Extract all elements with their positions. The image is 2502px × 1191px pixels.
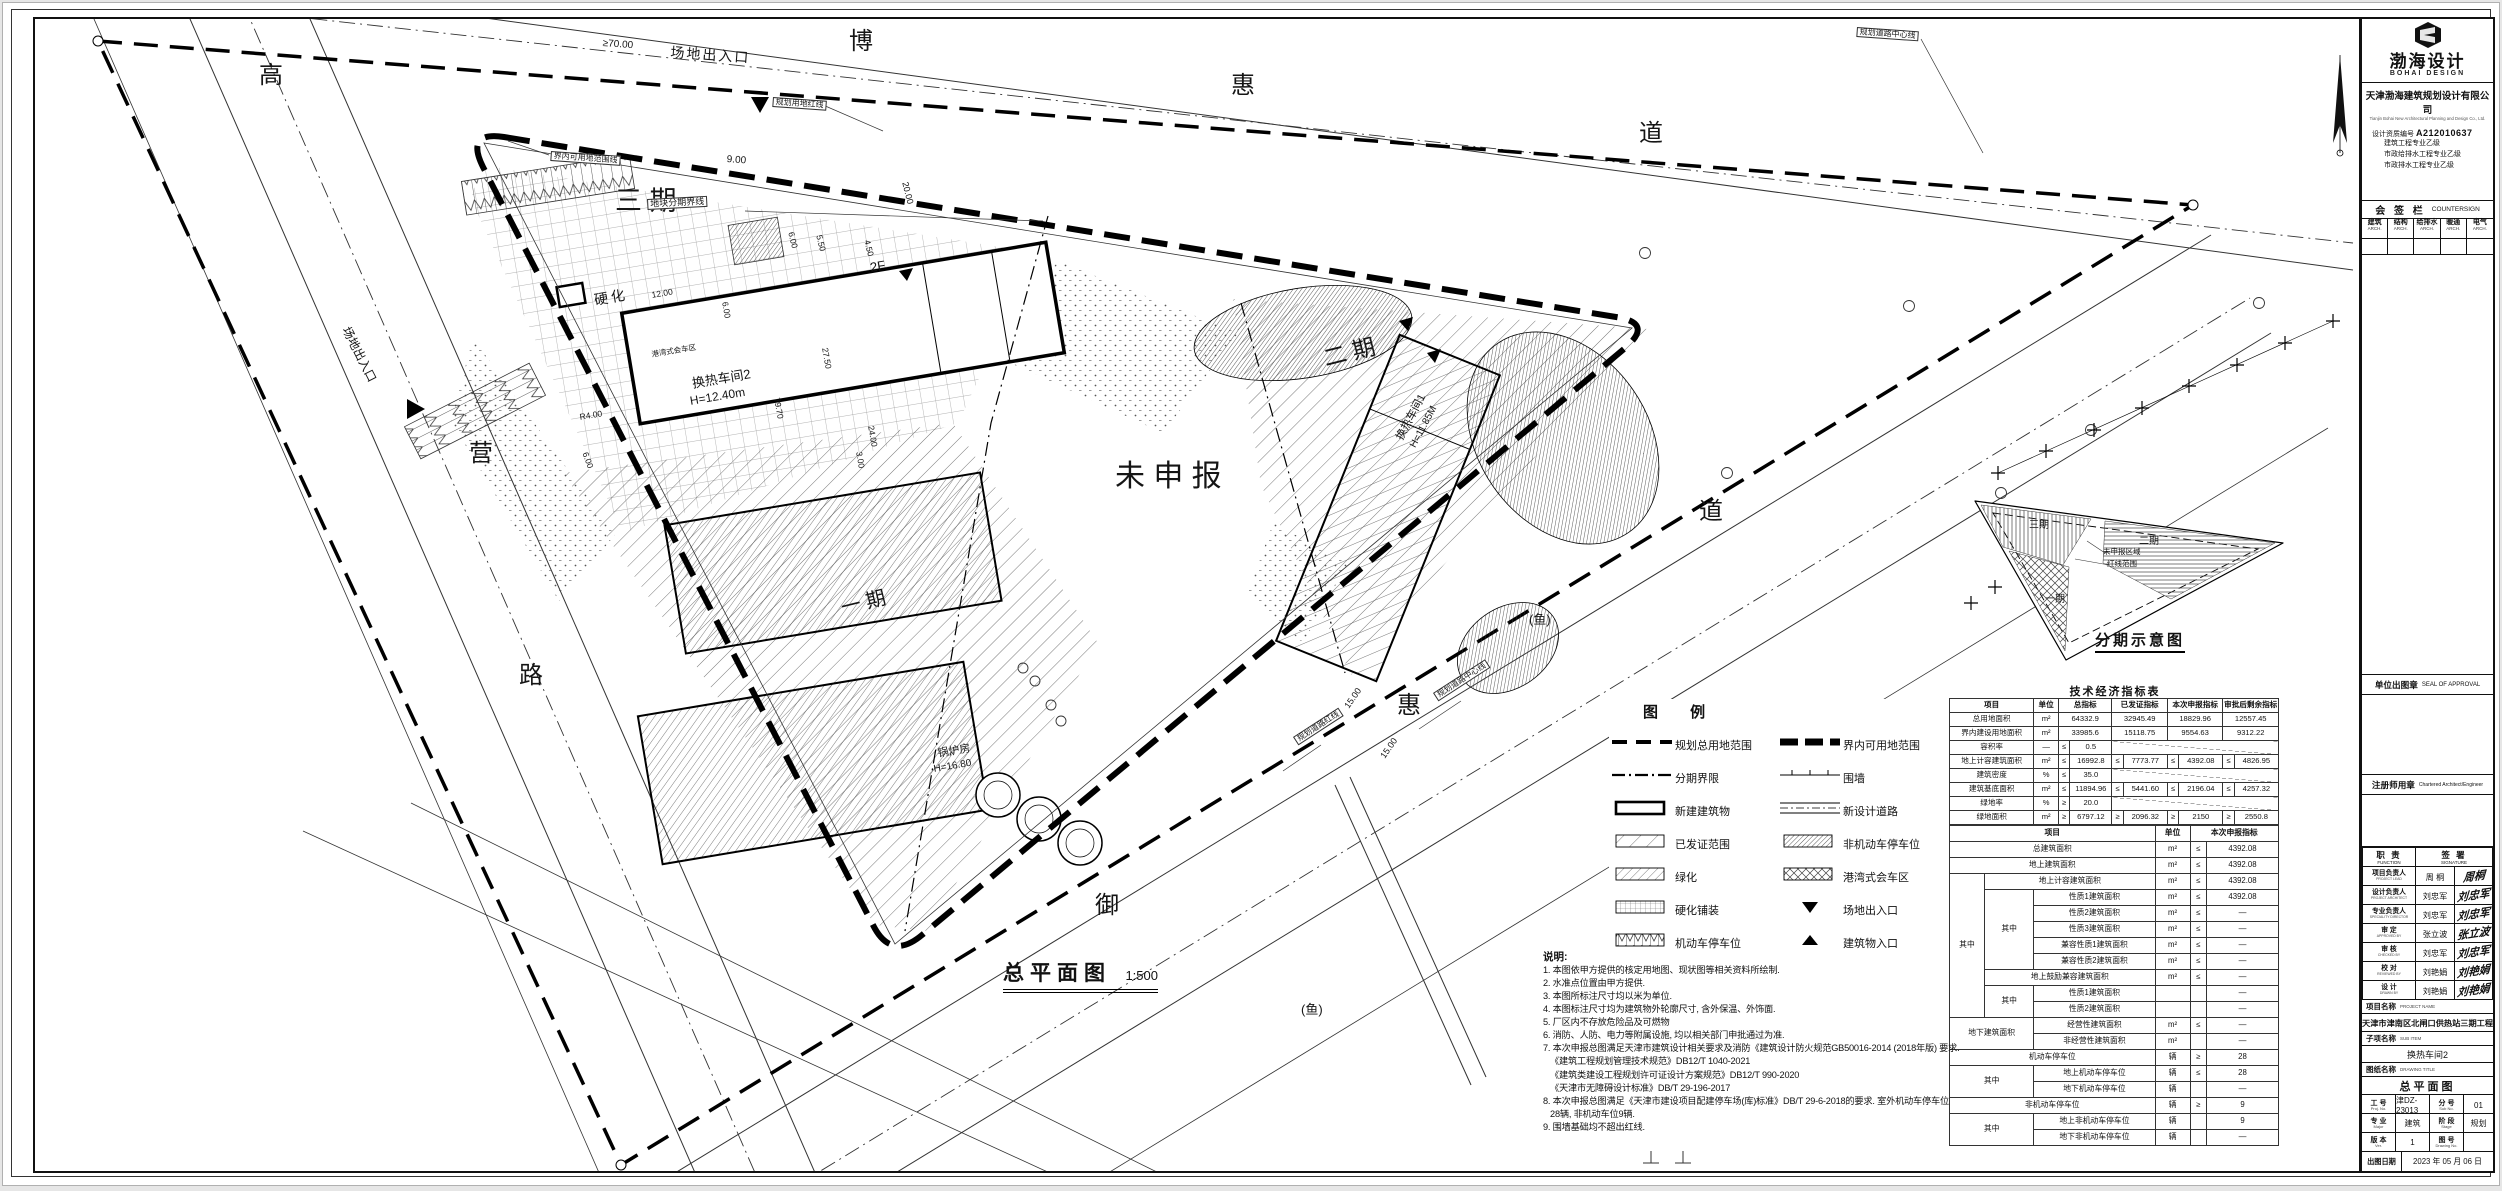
tech-cell: 性质2建筑面积 xyxy=(2034,1002,2155,1018)
tech-row: 地上鼓励兼容建筑面积m²≤— xyxy=(1950,970,2279,986)
tech-row: 其中性质1建筑面积— xyxy=(1950,986,2279,1002)
countersign-col-header: 结构ARCH. xyxy=(2388,219,2414,239)
tech-cell: 28 xyxy=(2207,1066,2279,1082)
personnel-signature: 刘忠军 xyxy=(2455,943,2493,962)
tech-cell: 0.5 xyxy=(2070,741,2112,755)
tech-cell: % xyxy=(2034,797,2059,811)
tech-cell xyxy=(2190,986,2206,1002)
tech-cell: — xyxy=(2207,1034,2279,1050)
personnel-role: 审 定APPROVED BY xyxy=(2363,924,2416,943)
function-header-cn: 职 责 xyxy=(2363,849,2415,861)
tech-cell: m² xyxy=(2034,811,2059,825)
personnel-name-text: 刘忠军 xyxy=(2423,911,2448,920)
countersign-empty-cell xyxy=(2362,239,2388,254)
zone-fills xyxy=(451,165,1699,931)
legend-item-label: 规划总用地范围 xyxy=(1675,737,1752,753)
countersign-empty-cell xyxy=(2441,239,2467,254)
signature-scrawl: 周桐 xyxy=(2462,866,2485,885)
tech-cell: m² xyxy=(2034,727,2059,741)
tech-cell: 辆 xyxy=(2155,1130,2190,1146)
issue-date-label: 出图日期 xyxy=(2362,1152,2402,1171)
notes-line: 2. 水准点位置由甲方提供. xyxy=(1543,977,1945,990)
legend-item: 界内可用地范围 xyxy=(1777,728,1945,761)
tech-header-cell: 总指标 xyxy=(2058,699,2111,713)
meta-label-en: Sub No. xyxy=(2439,1107,2453,1111)
tech-cell: 非机动车停车位 xyxy=(1950,1098,2156,1114)
personnel-signature: 刘忠军 xyxy=(2455,886,2493,905)
personnel-role-en: PROJECT ARCHITECT xyxy=(2366,897,2413,900)
notes-line: 《天津市无障碍设计标准》DB/T 29-196-2017 xyxy=(1543,1082,1945,1095)
meta-row: 工 号Proj. No.津DZ-23013分 号Sub No.01 xyxy=(2362,1095,2493,1114)
tech-cell: — xyxy=(2207,954,2279,970)
meta-label: 版 本Ver. xyxy=(2362,1133,2396,1151)
tech-cell: — xyxy=(2207,1002,2279,1018)
meta-value-text: 规划 xyxy=(2471,1118,2487,1129)
personnel-role-en: APPROVED BY xyxy=(2366,935,2413,938)
tech-cell: 容积率 xyxy=(1950,741,2034,755)
signature-header-cn: 签 署 xyxy=(2416,849,2492,861)
issue-date-value: 2023 年 05 月 06 日 xyxy=(2402,1152,2493,1171)
tech-cell: 18829.96 xyxy=(2167,713,2223,727)
personnel-role-en: REVIEWED BY xyxy=(2366,973,2413,976)
tech-cell: 建筑基底面积 xyxy=(1950,783,2034,797)
tech-cell: — xyxy=(2207,906,2279,922)
tech-cell: 9554.63 xyxy=(2167,727,2223,741)
tech-cell: 总建筑面积 xyxy=(1950,842,2156,858)
tech-cell: 其中 xyxy=(1950,1066,2034,1098)
title-block: 渤海设计 BOHAI DESIGN 天津渤海建筑规划设计有限公司 Tianjin… xyxy=(2359,19,2493,1171)
personnel-name: 刘忠军 xyxy=(2416,886,2455,905)
tech-row: 其中地上计容建筑面积m²≤4392.08 xyxy=(1950,874,2279,890)
tech-cell: 其中 xyxy=(1984,890,2033,970)
tech-cell: 项目 xyxy=(1950,826,2156,842)
tech-cell: 28 xyxy=(2207,1050,2279,1066)
logo-cn: 渤海设计 xyxy=(2362,53,2493,70)
tech-cell: 2096.32 xyxy=(2123,811,2167,825)
tech-cell: m² xyxy=(2155,1034,2190,1050)
tech-row: 建筑基底面积m²≤11894.96≤5441.60≤2196.04≤4257.3… xyxy=(1950,783,2279,797)
tech-cell: ≤ xyxy=(2190,890,2206,906)
dash-bold-icon xyxy=(1609,733,1675,756)
tech-cell: 64332.9 xyxy=(2058,713,2111,727)
tech-cell: ≥ xyxy=(2167,811,2178,825)
legend: 图 例 规划总用地范围分期界限新建建筑物已发证范围绿化硬化铺装机动车停车位 界内… xyxy=(1609,699,1945,961)
subitem-label: 子项名称 SUB ITEM xyxy=(2362,1032,2493,1046)
tech-cell: m² xyxy=(2155,938,2190,954)
tech-cell: 7773.77 xyxy=(2123,755,2167,769)
tech-cell: 其中 xyxy=(1984,986,2033,1018)
tech-cell: 9 xyxy=(2207,1098,2279,1114)
notes-title: 说明: xyxy=(1543,949,1945,964)
tech-cell: 地下建筑面积 xyxy=(1950,1018,2034,1050)
tech-cell: 33985.6 xyxy=(2058,727,2111,741)
tech-cell: m² xyxy=(2155,874,2190,890)
tech-cell: 4392.08 xyxy=(2179,755,2223,769)
countersign-header: 会 签 栏 COUNTERSIGN xyxy=(2362,201,2493,219)
tech-row: 地上建筑面积m²≤4392.08 xyxy=(1950,858,2279,874)
qualification-3: 市政排水工程专业乙级 xyxy=(2362,161,2493,172)
tech-cell: 辆 xyxy=(2155,1066,2190,1082)
tech-row: 建筑密度%≤35.0 xyxy=(1950,769,2279,783)
tech-cell: 35.0 xyxy=(2070,769,2112,783)
personnel-name-text: 刘艳娟 xyxy=(2423,987,2448,996)
crosshatch-icon xyxy=(1777,865,1843,888)
tech-cell: ≤ xyxy=(2112,783,2123,797)
tech-cell: 地上计容建筑面积 xyxy=(1950,755,2034,769)
tech-cell: 兼容性质1建筑面积 xyxy=(2034,938,2155,954)
plan-caption-scale: 1:500 xyxy=(1125,968,1158,983)
tech-cell: — xyxy=(2207,1130,2279,1146)
legend-left-column: 规划总用地范围分期界限新建建筑物已发证范围绿化硬化铺装机动车停车位 xyxy=(1609,728,1777,959)
tech-header-cell: 审批后剩余指标 xyxy=(2223,699,2279,713)
tech-diag-cell xyxy=(2112,769,2279,783)
seal-label-cn: 单位出图章 xyxy=(2375,679,2418,691)
personnel-role: 审 核CHECKED BY xyxy=(2363,943,2416,962)
personnel-role-en: CHECKED BY xyxy=(2366,954,2413,957)
legend-item-label: 绿化 xyxy=(1675,869,1697,885)
subitem-label-cn: 子项名称 xyxy=(2366,1033,2396,1044)
tech-cell: 其中 xyxy=(1950,1114,2034,1146)
tech-cell: m² xyxy=(2155,890,2190,906)
countersign-col-header: 给排水ARCH. xyxy=(2414,219,2440,239)
countersign-col-header: 电气ARCH. xyxy=(2467,219,2493,239)
tech-cell: m² xyxy=(2155,858,2190,874)
seal-space xyxy=(2362,695,2493,775)
personnel-name: 刘艳娟 xyxy=(2416,981,2455,1000)
building-guardhouse xyxy=(557,283,586,307)
phase-caption-title: 分期示意图 xyxy=(2095,632,2185,653)
tech-cell: 16992.8 xyxy=(2070,755,2112,769)
chartered-label-cn: 注册师用章 xyxy=(2372,779,2415,791)
countersign-empty-cell xyxy=(2467,239,2493,254)
legend-item-label: 界内可用地范围 xyxy=(1843,737,1920,753)
tech-cell xyxy=(2155,1002,2190,1018)
legend-item-label: 港湾式会车区 xyxy=(1843,869,1909,885)
meta-value-text: 1 xyxy=(2410,1138,2414,1147)
tech-cell: % xyxy=(2034,769,2059,783)
tech-cell xyxy=(2190,1082,2206,1098)
meta-label: 专 业Major xyxy=(2362,1114,2396,1132)
fence-icon xyxy=(1777,766,1843,789)
tech-cell: ≤ xyxy=(2167,783,2178,797)
chartered-space xyxy=(2362,795,2493,847)
countersign-title-en: COUNTERSIGN xyxy=(2432,206,2480,213)
tech-cell: 性质1建筑面积 xyxy=(2034,986,2155,1002)
meta-label: 分 号Sub No. xyxy=(2430,1095,2464,1115)
legend-item: 已发证范围 xyxy=(1609,827,1777,860)
tech-header-cell: 已发证指标 xyxy=(2112,699,2168,713)
tech-row: 其中地上机动车停车位辆≤28 xyxy=(1950,1066,2279,1082)
meta-value: 建筑 xyxy=(2396,1114,2430,1132)
tech-table-title: 技术经济指标表 xyxy=(1949,683,2281,698)
tech-cell: 机动车停车位 xyxy=(1950,1050,2156,1066)
tech-cell: ≤ xyxy=(2223,755,2234,769)
meta-value-text: 津DZ-23013 xyxy=(2396,1095,2429,1115)
meta-value: 1 xyxy=(2396,1133,2430,1151)
credential-label: 设计资质编号 xyxy=(2372,131,2414,138)
tech-cell: 地上建筑面积 xyxy=(1950,858,2156,874)
company-name-en: Tianjin Bohai New Architectural Planning… xyxy=(2367,116,2488,121)
tech-cell: m² xyxy=(2034,755,2059,769)
personnel-row: 专业负责人SPECIALITY DIRECTOR刘忠军刘忠军 xyxy=(2363,905,2493,924)
plan-caption: 总平面图 1:500 xyxy=(1003,957,1158,993)
seal-label-en: SEAL OF APPROVAL xyxy=(2422,682,2480,688)
legend-item: 场地出入口 xyxy=(1777,893,1945,926)
qualification-2: 市政给排水工程专业乙级 xyxy=(2362,150,2493,161)
personnel-role: 设 计DRAWN BY xyxy=(2363,981,2416,1000)
legend-title: 图 例 xyxy=(1643,701,1945,722)
tech-cell: m² xyxy=(2155,922,2190,938)
tech-cell: 20.0 xyxy=(2070,797,2112,811)
tech-cell: 兼容性质2建筑面积 xyxy=(2034,954,2155,970)
tech-cell: 6797.12 xyxy=(2070,811,2112,825)
countersign-title-cn: 会 签 栏 xyxy=(2375,202,2426,217)
tech-cell: ≤ xyxy=(2112,755,2123,769)
tech-cell: ≥ xyxy=(2190,1050,2206,1066)
personnel-table: 职 责 FUNCTION 签 署 SIGNATURE 项目负责人PROJECT … xyxy=(2362,847,2493,1000)
tech-row: 界内建设用地面积m²33985.615118.759554.639312.22 xyxy=(1950,727,2279,741)
tech-row: 地上计容建筑面积m²≤16992.8≤7773.77≤4392.08≤4826.… xyxy=(1950,755,2279,769)
signature-scrawl: 刘艳娟 xyxy=(2457,980,2491,1001)
legend-item-label: 已发证范围 xyxy=(1675,836,1730,852)
rect-bold-icon xyxy=(1609,799,1675,822)
notes-line: 1. 本图依甲方提供的核定用地图、现状图等相关资料所绘制. xyxy=(1543,964,1945,977)
tech-cell: ≥ xyxy=(2058,811,2069,825)
signature-header-en: SIGNATURE xyxy=(2416,861,2492,866)
tech-cell: m² xyxy=(2155,842,2190,858)
tech-cell: 地下机动车停车位 xyxy=(2034,1082,2155,1098)
drawing-label-en: DRAWING TITLE xyxy=(2400,1067,2435,1072)
personnel-signature: 刘忠军 xyxy=(2455,905,2493,924)
bohai-logo-icon xyxy=(2413,22,2443,48)
tech-cell: 地下非机动车停车位 xyxy=(2034,1130,2155,1146)
personnel-name: 刘艳娟 xyxy=(2416,962,2455,981)
meta-label: 图 号Drawing No. xyxy=(2430,1133,2464,1151)
tech-cell: — xyxy=(2207,938,2279,954)
tech-row: 机动车停车位辆≥28 xyxy=(1950,1050,2279,1066)
tech-cell: ≤ xyxy=(2190,1018,2206,1034)
subitem-label-en: SUB ITEM xyxy=(2400,1036,2421,1041)
tech-cell: ≥ xyxy=(2223,811,2234,825)
legend-item-label: 新建建筑物 xyxy=(1675,803,1730,819)
dashdot-icon xyxy=(1609,766,1675,789)
countersign-col-en: ARCH. xyxy=(2388,227,2413,232)
tech-cell: ≤ xyxy=(2190,938,2206,954)
meta-label-en: Drawing No. xyxy=(2435,1144,2457,1148)
signature-scrawl: 刘忠军 xyxy=(2457,942,2491,963)
signature-scrawl: 刘忠军 xyxy=(2457,904,2491,925)
dash-heavy-icon xyxy=(1777,733,1843,756)
notes-line: 6. 消防、人防、电力等附属设施, 均以相关部门申批通过为准. xyxy=(1543,1029,1945,1042)
notes-block: 说明: 1. 本图依甲方提供的核定用地图、现状图等相关资料所绘制.2. 水准点位… xyxy=(1543,949,1945,1134)
tech-cell: m² xyxy=(2155,906,2190,922)
tech-cell: ≤ xyxy=(2223,783,2234,797)
tech-table-part1: 项目单位总指标已发证指标本次申报指标审批后剩余指标总用地面积m²64332.93… xyxy=(1949,698,2279,825)
chartered-row: 注册师用章 Chartered Architect/Engineer xyxy=(2362,775,2493,795)
tech-cell: 界内建设用地面积 xyxy=(1950,727,2034,741)
tech-cell xyxy=(2190,1034,2206,1050)
tech-cell: m² xyxy=(2155,1018,2190,1034)
tech-header-cell: 本次申报指标 xyxy=(2167,699,2223,713)
tech-cell: 32945.49 xyxy=(2112,713,2168,727)
grid-icon xyxy=(1609,898,1675,921)
tech-cell: 经营性建筑面积 xyxy=(2034,1018,2155,1034)
chartered-label-en: Chartered Architect/Engineer xyxy=(2419,782,2483,788)
countersign-col-en: ARCH. xyxy=(2414,227,2439,232)
hatch-wide-icon xyxy=(1609,832,1675,855)
tech-cell: 11894.96 xyxy=(2070,783,2112,797)
personnel-name: 张立波 xyxy=(2416,924,2455,943)
drawing-title-label: 图纸名称 DRAWING TITLE xyxy=(2362,1063,2493,1077)
notes-line: 《建筑类建设工程规划许可证设计方案规范》DB12/T 990-2020 xyxy=(1543,1069,1945,1082)
personnel-row: 校 对REVIEWED BY刘艳娟刘艳娟 xyxy=(2363,962,2493,981)
tech-row: 项目单位本次申报指标 xyxy=(1950,826,2279,842)
personnel-name-text: 刘艳娟 xyxy=(2423,968,2448,977)
qualification-1: 建筑工程专业乙级 xyxy=(2362,139,2493,150)
tech-cell: 绿地率 xyxy=(1950,797,2034,811)
notes-line: 3. 本图所标注尺寸均以米为单位. xyxy=(1543,990,1945,1003)
tech-cell: 15118.75 xyxy=(2112,727,2168,741)
personnel-header-row: 职 责 FUNCTION 签 署 SIGNATURE xyxy=(2363,848,2493,867)
legend-item: 规划总用地范围 xyxy=(1609,728,1777,761)
tech-cell: ≤ xyxy=(2190,954,2206,970)
tech-diag-cell xyxy=(2112,741,2279,755)
countersign-empty-cell xyxy=(2388,239,2414,254)
tech-row: 总建筑面积m²≤4392.08 xyxy=(1950,842,2279,858)
project-label-en: PROJECT NAME xyxy=(2400,1004,2435,1009)
personnel-signature: 刘艳娟 xyxy=(2455,962,2493,981)
tech-cell: — xyxy=(2207,970,2279,986)
personnel-role: 校 对REVIEWED BY xyxy=(2363,962,2416,981)
personnel-row: 审 定APPROVED BY张立波张立波 xyxy=(2363,924,2493,943)
tech-cell: 辆 xyxy=(2155,1098,2190,1114)
meta-row: 版 本Ver.1图 号Drawing No. xyxy=(2362,1133,2493,1152)
meta-value-text: 建筑 xyxy=(2405,1118,2421,1129)
project-name-label: 项目名称 PROJECT NAME xyxy=(2362,1000,2493,1014)
tech-header-cell: 单位 xyxy=(2034,699,2059,713)
tech-cell: ≤ xyxy=(2190,1066,2206,1082)
legend-item: 新设计道路 xyxy=(1777,794,1945,827)
personnel-signature: 周桐 xyxy=(2455,867,2493,886)
tech-cell: ≤ xyxy=(2058,741,2069,755)
tech-row: 绿地率%≥20.0 xyxy=(1950,797,2279,811)
tech-cell: m² xyxy=(2155,954,2190,970)
countersign-col-en: ARCH. xyxy=(2362,227,2387,232)
tech-row: 总用地面积m²64332.932945.4918829.9612557.45 xyxy=(1950,713,2279,727)
meta-label-en: Ver. xyxy=(2375,1144,2382,1148)
legend-item: 分期界限 xyxy=(1609,761,1777,794)
meta-rows: 工 号Proj. No.津DZ-23013分 号Sub No.01专 业Majo… xyxy=(2362,1095,2493,1152)
countersign-col-en: ARCH. xyxy=(2441,227,2466,232)
legend-item-label: 硬化铺装 xyxy=(1675,902,1719,918)
tech-cell: ≤ xyxy=(2058,769,2069,783)
tech-cell: 性质2建筑面积 xyxy=(2034,906,2155,922)
tech-cell: — xyxy=(2207,1082,2279,1098)
tech-row: 其中性质1建筑面积m²≤4392.08 xyxy=(1950,890,2279,906)
tech-cell: ≥ xyxy=(2058,797,2069,811)
credential-number: A212010637 xyxy=(2416,128,2473,138)
tech-cell: m² xyxy=(2034,783,2059,797)
tech-cell: 2150 xyxy=(2179,811,2223,825)
tech-cell: — xyxy=(2207,986,2279,1002)
tech-cell: 9 xyxy=(2207,1114,2279,1130)
personnel-role: 项目负责人PROJECT LEAD xyxy=(2363,867,2416,886)
personnel-row: 设计负责人PROJECT ARCHITECT刘忠军刘忠军 xyxy=(2363,886,2493,905)
personnel-name-text: 张立波 xyxy=(2423,930,2448,939)
tech-cell: 性质3建筑面积 xyxy=(2034,922,2155,938)
countersign-col-header: 暖通ARCH. xyxy=(2441,219,2467,239)
personnel-row: 项目负责人PROJECT LEAD周 桐周桐 xyxy=(2363,867,2493,886)
meta-value-text: 01 xyxy=(2474,1101,2483,1110)
tech-cell: 4392.08 xyxy=(2207,842,2279,858)
legend-item: 硬化铺装 xyxy=(1609,893,1777,926)
notes-line: 《建筑工程规划管理技术规范》DB12/T 1040-2021 xyxy=(1543,1055,1945,1068)
meta-label: 阶 段Stage xyxy=(2430,1114,2464,1132)
misc-marks xyxy=(1643,1151,1691,1163)
seal-of-approval-row: 单位出图章 SEAL OF APPROVAL xyxy=(2362,675,2493,695)
tech-row: 地下建筑面积经营性建筑面积m²≤— xyxy=(1950,1018,2279,1034)
tech-cell: 辆 xyxy=(2155,1082,2190,1098)
tech-cell: 辆 xyxy=(2155,1114,2190,1130)
notes-line: 7. 本次申报总图满足天津市建筑设计相关要求及消防《建筑设计防火规范GB5001… xyxy=(1543,1042,1945,1055)
signature-scrawl: 刘忠军 xyxy=(2457,885,2491,906)
project-label-cn: 项目名称 xyxy=(2366,1001,2396,1012)
project-name-value: 天津市津南区北闸口供热站三期工程 xyxy=(2362,1014,2493,1032)
legend-item-label: 围墙 xyxy=(1843,770,1865,786)
legend-item-label: 新设计道路 xyxy=(1843,803,1898,819)
tech-cell: 辆 xyxy=(2155,1050,2190,1066)
tech-cell: 4392.08 xyxy=(2207,858,2279,874)
title-block-spacer xyxy=(2362,255,2493,675)
tech-cell: — xyxy=(2207,1018,2279,1034)
tech-cell: 2550.8 xyxy=(2234,811,2278,825)
personnel-name: 刘忠军 xyxy=(2416,943,2455,962)
personnel-role-en: DRAWN BY xyxy=(2366,992,2413,995)
tech-cell: 地上非机动车停车位 xyxy=(2034,1114,2155,1130)
personnel-signature: 刘艳娟 xyxy=(2455,981,2493,1000)
meta-value: 规划 xyxy=(2464,1114,2493,1132)
north-arrow-icon xyxy=(2333,55,2347,156)
tech-cell: — xyxy=(2207,922,2279,938)
tech-cell: ≤ xyxy=(2190,970,2206,986)
tech-cell: ≥ xyxy=(2190,1098,2206,1114)
tech-indicator-table: 技术经济指标表 项目单位总指标已发证指标本次申报指标审批后剩余指标总用地面积m²… xyxy=(1949,683,2281,1146)
tech-cell: ≤ xyxy=(2190,858,2206,874)
personnel-name-text: 刘忠军 xyxy=(2423,949,2448,958)
personnel-role: 设计负责人PROJECT ARCHITECT xyxy=(2363,886,2416,905)
tech-cell xyxy=(2155,986,2190,1002)
meta-label-en: Major xyxy=(2373,1125,2383,1129)
arrow-site-icon xyxy=(1777,898,1843,921)
tech-row: 绿地面积m²≥6797.12≥2096.32≥2150≥2550.8 xyxy=(1950,811,2279,825)
tech-cell xyxy=(2190,1130,2206,1146)
tech-row: 容积率—≤0.5 xyxy=(1950,741,2279,755)
tech-cell: 4392.08 xyxy=(2207,874,2279,890)
tech-cell xyxy=(2190,1114,2206,1130)
personnel-name: 周 桐 xyxy=(2416,867,2455,886)
tech-cell: 其中 xyxy=(1950,874,1985,1018)
company-section: 天津渤海建筑规划设计有限公司 Tianjin Bohai New Archite… xyxy=(2362,83,2493,201)
tech-cell: 地上鼓励兼容建筑面积 xyxy=(1984,970,2155,986)
tech-row: 非机动车停车位辆≥9 xyxy=(1950,1098,2279,1114)
legend-item: 新建建筑物 xyxy=(1609,794,1777,827)
meta-value xyxy=(2464,1133,2493,1151)
drawing-title-value: 总平面图 xyxy=(2362,1077,2493,1095)
personnel-name-text: 刘忠军 xyxy=(2423,892,2448,901)
phase-caption: 分期示意图 xyxy=(2095,629,2185,650)
tech-cell: 12557.45 xyxy=(2223,713,2279,727)
tech-cell: 总用地面积 xyxy=(1950,713,2034,727)
